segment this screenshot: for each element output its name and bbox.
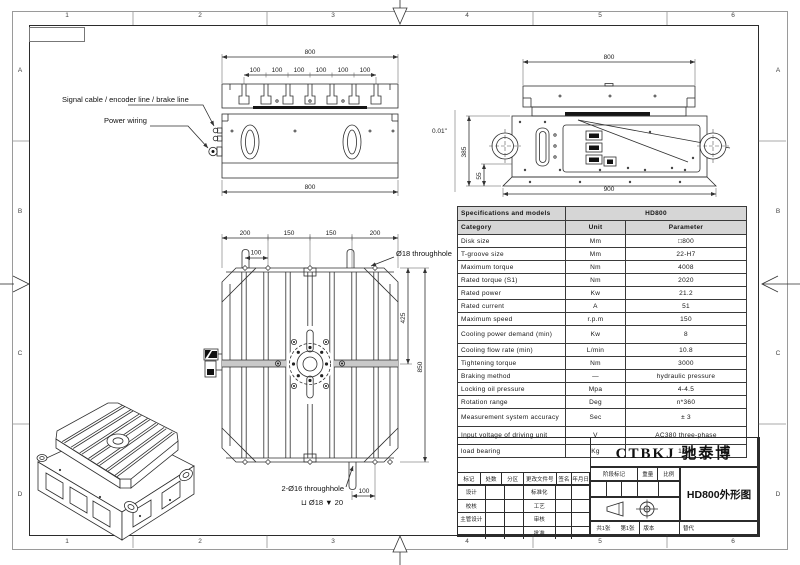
dim-front-width: 800 — [305, 184, 316, 191]
rev-header: 处数 — [481, 473, 503, 484]
dim-side-height: 385 — [461, 146, 468, 157]
sheet-total: 共1张 — [591, 522, 616, 534]
spec-table: Specifications and models HD800 Category… — [457, 206, 747, 458]
spec-cell: Rotation range — [458, 396, 566, 409]
spec-cell: 3000 — [626, 357, 747, 370]
sign-space — [572, 500, 589, 513]
hole-top-label: Ø18 throughhole — [396, 249, 452, 258]
revision-header-row: 标记 处数 分区 更改文件号 签名 年月日 — [457, 472, 590, 485]
spec-cell: Cooling power demand (min) — [458, 326, 566, 344]
dim-pitch: 100 — [360, 67, 371, 74]
spec-header-row: Specifications and models HD800 — [458, 207, 747, 221]
spec-cell: n*360 — [626, 396, 747, 409]
spec-cell: 10.8 — [626, 344, 747, 357]
dim-section-width: 800 — [305, 49, 316, 56]
spec-cell: Nm — [566, 274, 626, 287]
signature-grid: 设计 标准化 校核 工艺 主管设计 审核 批准 — [457, 485, 590, 535]
spec-row: Tightening torqueNm3000 — [458, 357, 747, 370]
dim-side-base: 900 — [604, 186, 615, 193]
spec-cell: Measurement system accuracy — [458, 409, 566, 427]
spec-cell: Maximum speed — [458, 313, 566, 326]
stage-mark-label: 阶段标记 — [591, 468, 638, 480]
sign-space — [505, 527, 524, 540]
isometric-view — [37, 403, 195, 540]
plan-connector-detail — [204, 349, 222, 377]
spec-cell: Mpa — [566, 383, 626, 396]
sign-space — [556, 486, 573, 499]
power-wiring-label: Power wiring — [104, 116, 147, 125]
spec-cell: 22-H7 — [626, 248, 747, 261]
stage-cell — [607, 482, 623, 496]
spec-cell: Sec — [566, 409, 626, 427]
sign-space — [572, 513, 589, 526]
lifting-boss-left — [489, 129, 521, 163]
sign-label — [458, 527, 486, 540]
front-view: 800 Signal cable / encoder line / brake … — [62, 95, 398, 196]
dim-plan-top: 150 — [326, 230, 337, 237]
sign-space — [486, 513, 506, 526]
spec-title: Specifications and models — [458, 207, 566, 221]
spec-row: Rated powerKw21.2 — [458, 287, 747, 300]
spec-cell: Rated current — [458, 300, 566, 313]
drawing-sheet: 1 2 3 4 5 6 1 2 3 4 5 6 A B C D A B C D — [0, 0, 800, 565]
projection-symbol-cell — [590, 497, 680, 521]
spec-cell: T-groove size — [458, 248, 566, 261]
sign-label: 批准 — [524, 527, 556, 540]
rev-header: 标记 — [458, 473, 481, 484]
sign-space — [556, 500, 573, 513]
sign-space — [505, 513, 524, 526]
sign-space — [486, 527, 506, 540]
spec-col-parameter: Parameter — [626, 221, 747, 235]
dim-pitch: 100 — [272, 67, 283, 74]
spec-cell: Kw — [566, 326, 626, 344]
spec-row: Measurement system accuracySec± 3 — [458, 409, 747, 427]
flatness-note: 0.01" — [432, 128, 448, 135]
sign-label: 校核 — [458, 500, 486, 513]
dim-plan-top: 150 — [284, 230, 295, 237]
company-name: CTBKJ 驰泰博 — [590, 437, 758, 467]
scale-label: 比例 — [658, 468, 679, 480]
spec-cell: — — [566, 370, 626, 383]
dim-pitch: 100 — [294, 67, 305, 74]
spec-cell: Cooling flow rate (min) — [458, 344, 566, 357]
spec-columns-row: Category Unit Parameter — [458, 221, 747, 235]
spec-row: Maximum speedr.p.m150 — [458, 313, 747, 326]
dim-side-top: 800 — [604, 54, 615, 61]
sign-space — [572, 527, 589, 540]
spec-cell: r.p.m — [566, 313, 626, 326]
spec-col-category: Category — [458, 221, 566, 235]
spec-cell: Braking method — [458, 370, 566, 383]
projection-symbol — [603, 499, 667, 519]
weight-label: 重量 — [638, 468, 659, 480]
counterbore-label: ⊔ Ø18 ▼ 20 — [301, 498, 343, 507]
rev-header: 更改文件号 — [524, 473, 557, 484]
spec-cell: L/min — [566, 344, 626, 357]
spec-cell: ± 3 — [626, 409, 747, 427]
dim-plan-100-top: 100 — [251, 250, 262, 257]
hole-bottom-label: 2-Ø16 throughhole — [281, 484, 344, 493]
spec-cell: Mm — [566, 235, 626, 248]
dim-plan-top: 200 — [240, 230, 251, 237]
spec-cell: A — [566, 300, 626, 313]
spec-cell: 150 — [626, 313, 747, 326]
spec-cell: 4008 — [626, 261, 747, 274]
spec-cell: Rated torque (S1) — [458, 274, 566, 287]
replace-label: 替代 — [680, 522, 757, 534]
power-connector — [209, 147, 222, 156]
spec-cell: 51 — [626, 300, 747, 313]
sign-space — [556, 513, 573, 526]
sign-space — [486, 486, 506, 499]
sign-label: 设计 — [458, 486, 486, 499]
spec-row: Rated currentA51 — [458, 300, 747, 313]
dim-plan-850: 850 — [417, 361, 424, 372]
spec-cell: Rated power — [458, 287, 566, 300]
spec-cell: 2020 — [626, 274, 747, 287]
dim-pitch: 100 — [316, 67, 327, 74]
spec-cell: hydraulic pressure — [626, 370, 747, 383]
stage-cells-row — [590, 481, 680, 497]
spec-cell: Deg — [566, 396, 626, 409]
drawing-title: HD800外形图 — [680, 467, 758, 521]
dim-plan-top: 200 — [370, 230, 381, 237]
section-view: 800 100 100 100 100 100 100 — [222, 49, 398, 109]
sign-label: 工艺 — [524, 500, 556, 513]
spec-model: HD800 — [566, 207, 747, 221]
stage-cell — [591, 482, 607, 496]
spec-cell: 4-4.5 — [626, 383, 747, 396]
sign-label: 标准化 — [524, 486, 556, 499]
spec-row: Rated torque (S1)Nm2020 — [458, 274, 747, 287]
dim-plan-425: 425 — [400, 312, 407, 323]
spec-row: Disk sizeMm□800 — [458, 235, 747, 248]
sign-space — [556, 527, 573, 540]
rev-header: 年月日 — [572, 473, 589, 484]
spec-col-unit: Unit — [566, 221, 626, 235]
stage-row: 阶段标记 重量 比例 — [590, 467, 680, 481]
signal-connectors — [213, 128, 222, 141]
spec-row: Cooling flow rate (min)L/min10.8 — [458, 344, 747, 357]
spec-cell: Nm — [566, 261, 626, 274]
dim-pitch: 100 — [338, 67, 349, 74]
spec-row: Cooling power demand (min)Kw8 — [458, 326, 747, 344]
spec-cell: Tightening torque — [458, 357, 566, 370]
dim-side-foot: 55 — [476, 172, 483, 180]
spec-row: Locking oil pressureMpa4-4.5 — [458, 383, 747, 396]
side-view: 800 — [432, 54, 730, 197]
spec-row: Rotation rangeDegn*360 — [458, 396, 747, 409]
spec-cell: Nm — [566, 357, 626, 370]
spec-cell: Kw — [566, 287, 626, 300]
spec-cell: 21.2 — [626, 287, 747, 300]
side-connector-icons — [586, 131, 616, 166]
scale-cell — [659, 482, 680, 496]
sign-label: 审核 — [524, 513, 556, 526]
sign-label: 主管设计 — [458, 513, 486, 526]
spec-cell: Locking oil pressure — [458, 383, 566, 396]
spec-cell: Maximum torque — [458, 261, 566, 274]
sign-space — [505, 486, 524, 499]
plan-view: 200 150 150 200 100 — [204, 230, 452, 507]
version-label: 版本 — [640, 522, 680, 534]
signal-cable-label: Signal cable / encoder line / brake line — [62, 95, 189, 104]
spec-cell: □800 — [626, 235, 747, 248]
weight-cell — [638, 482, 659, 496]
lifting-boss-right — [697, 129, 729, 163]
dim-plan-100-bottom: 100 — [359, 488, 370, 495]
spec-cell: Disk size — [458, 235, 566, 248]
rev-header: 签名 — [557, 473, 573, 484]
sheet-no: 第1张 — [616, 522, 641, 534]
sign-space — [486, 500, 506, 513]
spec-cell: 8 — [626, 326, 747, 344]
spec-row: Maximum torqueNm4008 — [458, 261, 747, 274]
spec-row: T-groove sizeMm22-H7 — [458, 248, 747, 261]
dim-pitch: 100 — [250, 67, 261, 74]
sheet-row: 共1张 第1张 版本 替代 — [590, 521, 758, 535]
spec-cell: Mm — [566, 248, 626, 261]
stage-cell — [622, 482, 638, 496]
sign-space — [505, 500, 524, 513]
sign-space — [572, 486, 589, 499]
spec-row: Braking method—hydraulic pressure — [458, 370, 747, 383]
rev-header: 分区 — [502, 473, 524, 484]
